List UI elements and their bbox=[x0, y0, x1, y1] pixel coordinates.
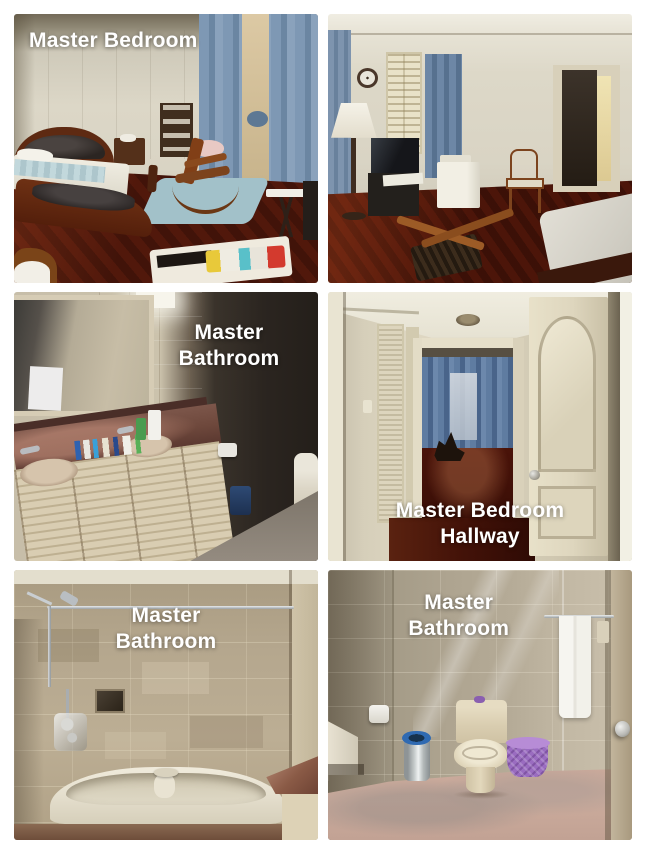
basket-rim bbox=[506, 737, 550, 749]
television bbox=[371, 138, 420, 176]
photo-master-bathroom-vanity: Master Bathroom bbox=[14, 292, 318, 561]
photo-label: Master Bathroom bbox=[14, 603, 318, 655]
towel-reflection bbox=[28, 366, 64, 411]
tile-tone-patch bbox=[105, 732, 166, 759]
tile-tone-patch bbox=[142, 662, 209, 694]
bed-post bbox=[147, 164, 158, 191]
opening-frame-top bbox=[413, 338, 522, 349]
curtain-tieback bbox=[247, 111, 268, 127]
photo-label-line: Bathroom bbox=[340, 616, 577, 642]
photo-label-line: Master bbox=[340, 590, 577, 616]
door-edge bbox=[611, 570, 632, 840]
photo-master-bedroom-second-view bbox=[328, 14, 632, 283]
soap-dish bbox=[154, 768, 178, 776]
ceiling-cornice bbox=[328, 33, 632, 35]
toilet-paper-holder bbox=[218, 443, 238, 458]
waste-bin bbox=[230, 486, 251, 516]
toilet-pedestal bbox=[466, 767, 495, 793]
sheer-curtain bbox=[242, 14, 269, 181]
bookshelf-items bbox=[163, 105, 190, 151]
upper-wall-strip bbox=[14, 570, 318, 584]
photo-label: Master Bedroom bbox=[29, 28, 198, 54]
photo-label-line: Bathroom bbox=[14, 629, 318, 655]
wall-clock bbox=[357, 68, 378, 88]
lit-bathroom-door bbox=[597, 76, 611, 181]
photo-collage: Master Bedroom bbox=[0, 0, 647, 854]
photo-master-bedroom: Master Bedroom bbox=[14, 14, 318, 283]
armchair-back bbox=[510, 149, 537, 181]
window-glow bbox=[450, 373, 477, 440]
photo-label-line: Master bbox=[14, 603, 318, 629]
photo-label-line: Master Bedroom bbox=[328, 498, 632, 524]
mini-fridge bbox=[437, 162, 480, 208]
tray-table-top bbox=[266, 189, 306, 197]
switch-plate bbox=[597, 621, 609, 643]
photo-label-line: Master bbox=[150, 320, 308, 346]
louvered-closet-door bbox=[377, 324, 404, 523]
photo-label: Master Bathroom bbox=[150, 320, 308, 372]
door-arch-panel bbox=[538, 316, 596, 472]
photo-master-bedroom-hallway: Master Bedroom Hallway bbox=[328, 292, 632, 561]
tub-surround-base bbox=[14, 824, 282, 840]
vanity-cabinet-corner bbox=[282, 794, 318, 840]
toilet-paper-holder bbox=[369, 705, 389, 723]
purple-item-on-tank bbox=[474, 696, 485, 704]
photo-label-line: Master Bedroom bbox=[29, 28, 198, 54]
armchair-legs bbox=[509, 189, 541, 213]
armchair-seat bbox=[506, 178, 544, 189]
nightstand bbox=[114, 138, 144, 165]
photo-label: Master Bedroom Hallway bbox=[328, 498, 632, 550]
photo-label-line: Hallway bbox=[328, 524, 632, 550]
bathtub-divider bbox=[154, 774, 175, 798]
wall-niche bbox=[95, 689, 125, 713]
floor-lamp-base bbox=[342, 212, 366, 220]
doorway-interior bbox=[562, 70, 597, 186]
tray-table-legs bbox=[269, 197, 302, 237]
photo-master-bathroom-toilet: Master Bathroom bbox=[328, 570, 632, 840]
shower-controls bbox=[54, 713, 87, 751]
door-knob bbox=[529, 470, 539, 481]
ceiling-light bbox=[456, 314, 480, 326]
white-bottle bbox=[148, 410, 162, 440]
photo-label-line: Bathroom bbox=[150, 346, 308, 372]
photo-master-bathroom-tub: Master Bathroom bbox=[14, 570, 318, 840]
tile-tone-patch bbox=[190, 716, 263, 748]
telephone bbox=[120, 134, 135, 142]
green-can bbox=[136, 418, 147, 440]
white-lace-cloth bbox=[14, 261, 50, 283]
photo-label: Master Bathroom bbox=[340, 590, 577, 642]
dark-cabinet bbox=[303, 181, 318, 240]
light-switch bbox=[363, 400, 372, 413]
toilet-tank bbox=[456, 700, 508, 743]
vanity-shadow bbox=[328, 764, 364, 775]
